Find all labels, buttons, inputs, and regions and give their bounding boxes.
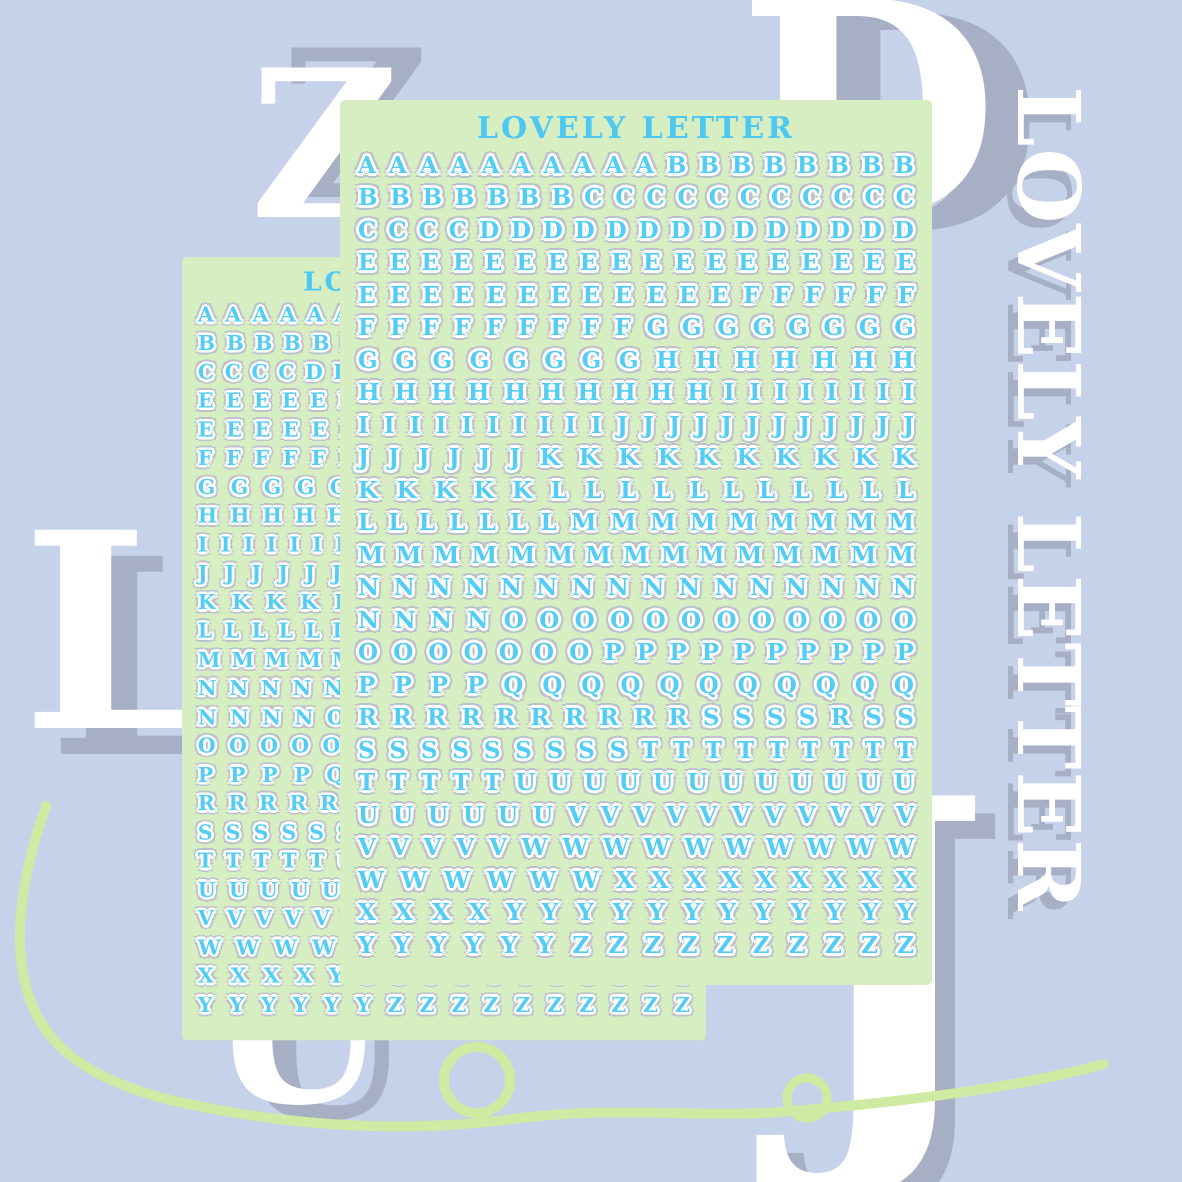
letter-sticker: V <box>227 909 243 929</box>
letter-sticker: U <box>550 771 570 794</box>
letter-sticker: Y <box>394 934 410 957</box>
letter-sticker: B <box>390 186 409 209</box>
letter-sticker: V <box>765 804 783 827</box>
letter-sticker: V <box>198 909 214 929</box>
letter-sticker: N <box>262 707 281 727</box>
letter-sticker: J <box>903 414 914 437</box>
letter-sticker: H <box>774 349 796 372</box>
letter-sticker: P <box>637 641 654 664</box>
letter-sticker: Y <box>324 995 339 1015</box>
letter-sticker: H <box>656 349 678 372</box>
letter-sticker: U <box>756 771 776 794</box>
letter-sticker: B <box>732 154 751 177</box>
letter-sticker: O <box>716 609 736 632</box>
letter-sticker: G <box>682 316 702 339</box>
letter-sticker: G <box>647 316 667 339</box>
letter-sticker: E <box>833 251 851 274</box>
letter-sticker: A <box>543 154 561 177</box>
letter-sticker: T <box>801 739 818 762</box>
letter-sticker: C <box>198 362 214 382</box>
letter-sticker: B <box>862 154 881 177</box>
letter-sticker: N <box>230 707 249 727</box>
letter-sticker: K <box>697 446 717 469</box>
letter-sticker: E <box>198 420 214 440</box>
letter-sticker: E <box>611 251 629 274</box>
letter-sticker: L <box>828 479 844 502</box>
letter-sticker: O <box>681 609 701 632</box>
letter-sticker: W <box>487 869 513 892</box>
letter-sticker: D <box>511 219 531 242</box>
letter-sticker: I <box>290 535 300 555</box>
letter-sticker: P <box>467 674 484 697</box>
letter-sticker: O <box>575 609 595 632</box>
letter-sticker: E <box>711 284 729 307</box>
letter-sticker: Y <box>897 901 913 924</box>
letter-sticker: R <box>496 706 515 729</box>
letter-sticker: U <box>428 804 448 827</box>
letter-sticker: O <box>752 609 772 632</box>
letter-sticker: N <box>198 678 217 698</box>
letter-sticker: B <box>552 186 571 209</box>
letter-sticker: G <box>859 316 879 339</box>
letter-sticker: I <box>198 535 208 555</box>
letter-sticker: Z <box>611 995 626 1015</box>
letter-sticker: H <box>295 506 314 526</box>
letter-sticker: V <box>666 804 684 827</box>
letter-sticker: L <box>419 511 435 534</box>
letter-sticker: M <box>737 544 762 567</box>
letter-sticker: B <box>667 154 686 177</box>
letter-sticker: Y <box>537 934 553 957</box>
letter-sticker: H <box>892 349 914 372</box>
letter-sticker: Y <box>862 901 878 924</box>
letter-sticker: G <box>544 349 564 372</box>
letter-sticker: F <box>255 448 269 468</box>
letter-sticker: Z <box>643 995 658 1015</box>
letter-sticker: L <box>620 479 636 502</box>
letter-sticker: M <box>265 650 288 670</box>
letter-sticker: B <box>255 333 272 353</box>
letter-sticker: M <box>358 544 383 567</box>
letter-sticker: M <box>623 544 648 567</box>
letter-sticker: F <box>486 316 502 339</box>
letter-sticker: J <box>449 446 460 469</box>
letter-sticker: E <box>226 391 242 411</box>
letter-sticker: R <box>599 706 618 729</box>
letter-sticker: J <box>479 446 490 469</box>
letter-row: PPPPQQQQQQQQQQQ <box>358 669 914 702</box>
letter-sticker: U <box>687 771 707 794</box>
letter-sticker: P <box>767 641 784 664</box>
letter-sticker: M <box>472 544 497 567</box>
letter-sticker: P <box>832 641 849 664</box>
letter-sticker: Y <box>261 995 276 1015</box>
letter-sticker: U <box>498 804 518 827</box>
letter-sticker: L <box>794 479 810 502</box>
letter-row: KKKKKLLLLLLLLLLL <box>358 474 914 507</box>
letter-sticker: E <box>643 251 661 274</box>
letter-sticker: M <box>699 544 724 567</box>
letter-sticker: K <box>658 446 678 469</box>
letter-sticker: E <box>390 284 408 307</box>
letter-sticker: Q <box>816 674 836 697</box>
letter-sticker: E <box>358 284 376 307</box>
letter-sticker: S <box>484 739 501 762</box>
letter-sticker: N <box>643 576 664 599</box>
letter-sticker: X <box>358 901 376 924</box>
letter-sticker: C <box>709 186 727 209</box>
letter-row: EEEEEEEEEEEEEEEEEE <box>358 247 914 280</box>
letter-sticker: Z <box>483 995 498 1015</box>
letter-sticker: L <box>898 479 914 502</box>
letter-sticker: X <box>756 869 774 892</box>
letter-sticker: P <box>897 641 914 664</box>
letter-sticker: H <box>687 381 709 404</box>
letter-sticker: D <box>862 219 882 242</box>
letter-sticker: U <box>358 804 378 827</box>
letter-sticker: O <box>646 609 666 632</box>
letter-sticker: D <box>671 219 691 242</box>
letter-sticker: J <box>225 563 235 583</box>
letter-sticker: E <box>551 284 569 307</box>
letter-sticker: J <box>305 563 315 583</box>
letter-sticker: U <box>859 771 879 794</box>
letter-sticker: W <box>644 836 670 859</box>
letter-sticker: M <box>730 511 755 534</box>
letter-sticker: J <box>799 414 810 437</box>
letter-row: GGGGGGGGHHHHHHH <box>358 344 914 377</box>
letter-sticker: E <box>282 391 298 411</box>
letter-sticker: N <box>679 576 700 599</box>
letter-sticker: N <box>750 576 771 599</box>
letter-sticker: J <box>695 414 706 437</box>
letter-sticker: L <box>724 479 740 502</box>
letter-sticker: O <box>464 641 484 664</box>
letter-sticker: T <box>452 771 469 794</box>
letter-sticker: Z <box>717 934 734 957</box>
letter-sticker: S <box>226 822 241 842</box>
letter-sticker: M <box>690 511 715 534</box>
letter-sticker: R <box>634 706 653 729</box>
letter-sticker: N <box>431 609 452 632</box>
letter-sticker: G <box>788 316 808 339</box>
letter-sticker: S <box>547 739 564 762</box>
letter-sticker: C <box>833 186 851 209</box>
letter-sticker: B <box>519 186 538 209</box>
letter-sticker: L <box>551 479 567 502</box>
letter-sticker: D <box>702 219 722 242</box>
letter-sticker: P <box>604 641 621 664</box>
letter-sticker: W <box>274 937 297 957</box>
letter-sticker: B <box>284 333 301 353</box>
letter-sticker: C <box>646 186 664 209</box>
letter-sticker: Z <box>753 934 770 957</box>
letter-sticker: Q <box>620 674 640 697</box>
letter-sticker: Y <box>826 901 842 924</box>
letter-sticker: E <box>801 251 819 274</box>
letter-sticker: T <box>769 739 786 762</box>
letter-sticker: O <box>323 736 341 756</box>
letter-sticker: L <box>252 621 266 641</box>
letter-row: SSSSSSSSSTTTTTTTTT <box>358 734 914 767</box>
letter-sticker: A <box>636 154 654 177</box>
letter-sticker: N <box>394 609 415 632</box>
letter-sticker: W <box>236 937 259 957</box>
letter-sticker: E <box>865 251 883 274</box>
letter-sticker: U <box>722 771 742 794</box>
letter-sticker: Z <box>388 995 403 1015</box>
letter-sticker: D <box>894 219 914 242</box>
letter-sticker: Y <box>613 901 629 924</box>
letter-sticker: M <box>585 544 610 567</box>
letter-sticker: C <box>896 186 914 209</box>
letter-sticker: I <box>852 381 863 404</box>
letter-sticker: G <box>395 349 415 372</box>
letter-sticker: L <box>759 479 775 502</box>
letter-sticker: D <box>575 219 595 242</box>
letter-sticker: P <box>198 765 213 785</box>
letter-sticker: X <box>395 901 413 924</box>
letter-sticker: N <box>786 576 807 599</box>
letter-sticker: S <box>358 739 375 762</box>
letter-sticker: K <box>855 446 875 469</box>
letter-sticker: N <box>261 678 280 698</box>
letter-sticker: M <box>510 544 535 567</box>
letter-sticker: S <box>421 739 438 762</box>
letter-sticker: Y <box>429 934 445 957</box>
letter-sticker: W <box>530 869 556 892</box>
letter-sticker: M <box>571 511 596 534</box>
letter-sticker: M <box>888 544 913 567</box>
letter-row: FFFFFFFFFGGGGGGGG <box>358 312 914 345</box>
letter-sticker: V <box>256 909 272 929</box>
letter-sticker: C <box>252 362 268 382</box>
letter-sticker: O <box>260 736 278 756</box>
letter-sticker: W <box>603 836 629 859</box>
letter-sticker: F <box>518 316 534 339</box>
letter-sticker: Z <box>897 934 914 957</box>
letter-sticker: D <box>305 362 323 382</box>
letter-row: NNNNOOOOOOOOOOOO <box>358 604 914 637</box>
letter-sticker: J <box>388 446 399 469</box>
letter-sticker: H <box>358 381 380 404</box>
letter-sticker: V <box>456 836 474 859</box>
letter-sticker: K <box>198 592 216 612</box>
letter-sticker: I <box>565 414 576 437</box>
letter-sticker: T <box>705 739 722 762</box>
letter-sticker: C <box>615 186 633 209</box>
letter-sticker: J <box>747 414 758 437</box>
letter-sticker: R <box>461 706 480 729</box>
sticker-sheet-front: LOVELY LETTER AAAAAAAAAABBBBBBBBBBBBBBBC… <box>340 100 932 985</box>
letter-sticker: F <box>743 284 759 307</box>
letter-sticker: E <box>679 284 697 307</box>
letter-sticker: N <box>293 678 312 698</box>
letter-sticker: T <box>198 851 213 871</box>
letter-sticker: K <box>815 446 835 469</box>
letter-sticker: X <box>896 869 914 892</box>
letter-sticker: Q <box>777 674 797 697</box>
letter-sticker: L <box>306 621 320 641</box>
letter-sticker: C <box>771 186 789 209</box>
letter-row: UUUUUUVVVVVVVVVVV <box>358 799 914 832</box>
letter-sticker: U <box>322 880 340 900</box>
letter-sticker: J <box>198 563 208 583</box>
letter-sticker: D <box>734 219 754 242</box>
letter-sticker: N <box>501 576 522 599</box>
letter-sticker: E <box>255 420 271 440</box>
letter-sticker: H <box>198 506 217 526</box>
letter-sticker: A <box>253 305 269 325</box>
letter-sticker: X <box>263 966 279 986</box>
letter-sticker: T <box>421 771 438 794</box>
letter-sticker: F <box>454 316 470 339</box>
letter-sticker: T <box>641 739 658 762</box>
letter-sticker: E <box>548 251 566 274</box>
letter-sticker: X <box>616 869 634 892</box>
letter-sticker: U <box>533 804 553 827</box>
letter-sticker: K <box>266 592 284 612</box>
letter-sticker: I <box>591 414 602 437</box>
letter-sticker: P <box>702 641 719 664</box>
letter-sticker: V <box>489 836 507 859</box>
letter-sticker: H <box>814 349 836 372</box>
letter-sticker: Y <box>501 934 517 957</box>
letter-sticker: F <box>774 284 790 307</box>
letter-sticker: F <box>805 284 821 307</box>
letter-sticker: K <box>474 479 494 502</box>
letter-row: VVVVVWWWWWWWWWW <box>358 832 914 865</box>
letter-sticker: N <box>893 576 914 599</box>
letter-sticker: O <box>539 609 559 632</box>
letter-sticker: P <box>394 674 411 697</box>
letter-sticker: Z <box>579 995 594 1015</box>
letter-row: RRRRRRRRRRSSSSRSS <box>358 702 914 735</box>
letter-row: NNNNNNNNNNNNNNNN <box>358 572 914 605</box>
letter-sticker: O <box>610 609 630 632</box>
letter-sticker: N <box>467 609 488 632</box>
letter-sticker: H <box>541 381 563 404</box>
letter-sticker: J <box>278 563 288 583</box>
letter-sticker: J <box>721 414 732 437</box>
letter-sticker: Y <box>198 995 213 1015</box>
letter-sticker: W <box>522 836 548 859</box>
letter-sticker: I <box>826 381 837 404</box>
letter-sticker: Y <box>465 934 481 957</box>
letter-sticker: Q <box>660 674 680 697</box>
letter-sticker: G <box>619 349 639 372</box>
letter-sticker: O <box>229 736 247 756</box>
letter-sticker: Y <box>230 995 245 1015</box>
letter-sticker: C <box>740 186 758 209</box>
letter-sticker: V <box>863 804 881 827</box>
letter-sticker: Z <box>825 934 842 957</box>
letter-sticker: R <box>320 794 337 814</box>
letter-sticker: F <box>836 284 852 307</box>
letter-sticker: E <box>706 251 724 274</box>
letter-sticker: Y <box>542 901 558 924</box>
letter-row: XXXXYYYYYYYYYYYY <box>358 897 914 930</box>
letter-sticker: Z <box>451 995 466 1015</box>
letter-sticker: O <box>569 641 589 664</box>
letter-sticker: Z <box>515 995 530 1015</box>
letter-sticker: B <box>227 333 244 353</box>
letter-sticker: K <box>540 446 560 469</box>
letter-sticker: A <box>512 154 530 177</box>
letter-sticker: C <box>449 219 467 242</box>
letter-sticker: T <box>897 739 914 762</box>
letter-sticker: Y <box>684 901 700 924</box>
letter-sticker: E <box>454 284 472 307</box>
letter-row: CCCCDDDDDDDDDDDDDD <box>358 214 914 247</box>
letter-sticker: V <box>699 804 717 827</box>
letter-sticker: F <box>898 284 914 307</box>
letter-sticker: U <box>291 880 309 900</box>
letter-sticker: A <box>451 154 469 177</box>
letter-sticker: S <box>309 822 324 842</box>
letter-sticker: O <box>499 641 519 664</box>
letter-sticker: M <box>434 544 459 567</box>
letter-sticker: E <box>254 391 270 411</box>
letter-sticker: E <box>580 251 598 274</box>
letter-sticker: H <box>395 381 417 404</box>
letter-sticker: I <box>801 381 812 404</box>
letter-sticker: H <box>853 349 875 372</box>
letter-sticker: S <box>389 739 406 762</box>
letter-sticker: N <box>198 707 217 727</box>
letter-sticker: F <box>283 448 297 468</box>
letter-sticker: D <box>607 219 627 242</box>
letter-sticker: H <box>230 506 249 526</box>
letter-sticker: V <box>798 804 816 827</box>
letter-sticker: R <box>668 706 687 729</box>
letter-sticker: E <box>647 284 665 307</box>
letter-sticker: I <box>462 414 473 437</box>
letter-sticker: K <box>776 446 796 469</box>
letter-sticker: E <box>583 284 601 307</box>
letter-sticker: W <box>725 836 751 859</box>
letter-sticker: O <box>393 641 413 664</box>
letter-sticker: R <box>427 706 446 729</box>
letter-sticker: M <box>396 544 421 567</box>
letter-sticker: E <box>485 251 503 274</box>
letter-sticker: U <box>229 880 247 900</box>
letter-sticker: E <box>312 420 328 440</box>
letter-sticker: C <box>864 186 882 209</box>
letter-sticker: S <box>767 706 784 729</box>
letter-sticker: K <box>435 479 455 502</box>
letter-sticker: N <box>572 576 593 599</box>
letter-sticker: N <box>822 576 843 599</box>
letter-sticker: D <box>830 219 850 242</box>
letter-sticker: B <box>358 186 377 209</box>
letter-sticker: I <box>775 381 786 404</box>
letter-sticker: U <box>260 880 278 900</box>
letter-sticker: E <box>310 391 326 411</box>
letter-sticker: W <box>573 869 599 892</box>
letter-sticker: K <box>736 446 756 469</box>
letter-sticker: O <box>858 609 878 632</box>
letter-sticker: Z <box>572 934 589 957</box>
letter-sticker: H <box>614 381 636 404</box>
letter-sticker: X <box>432 901 450 924</box>
letter-sticker: M <box>775 544 800 567</box>
letter-sticker: R <box>565 706 584 729</box>
letter-sticker: B <box>894 154 913 177</box>
letter-sticker: M <box>661 544 686 567</box>
letter-sticker: Z <box>608 934 625 957</box>
letter-sticker: E <box>486 284 504 307</box>
